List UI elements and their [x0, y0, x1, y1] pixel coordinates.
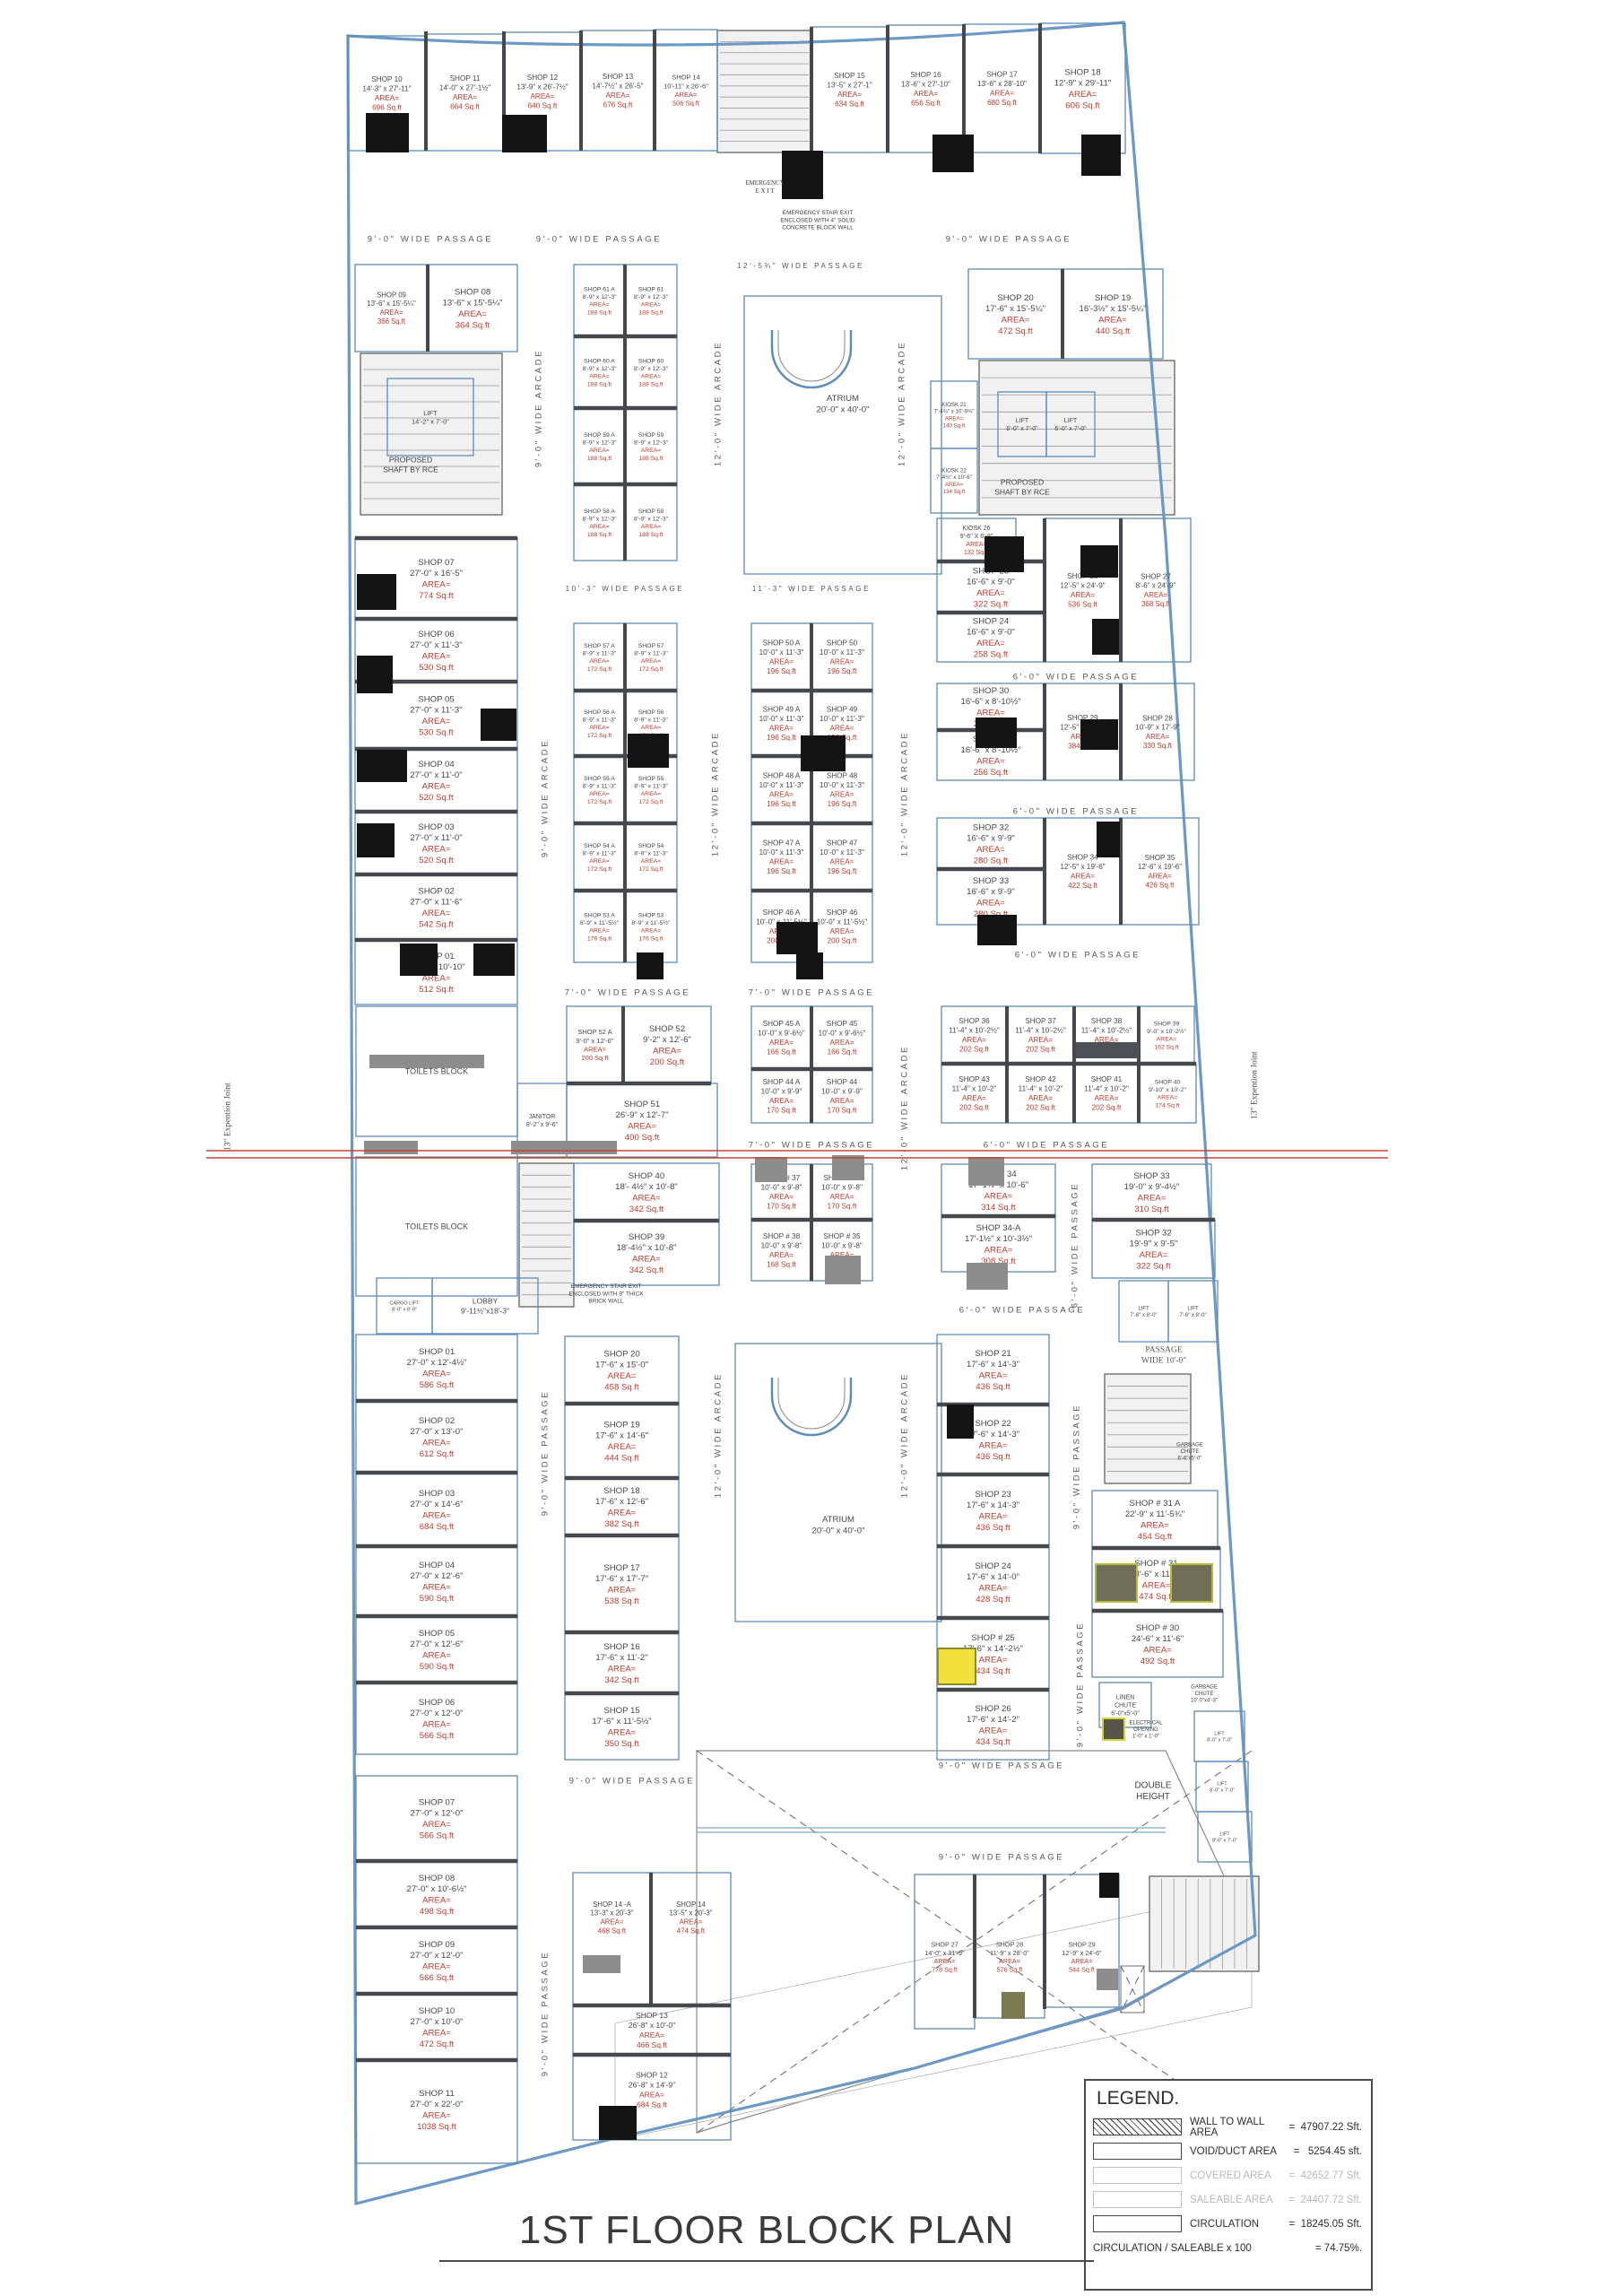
plan-text: 9'-0" WIDE ARCADE	[540, 739, 550, 857]
room: SHOP 4211'-4" x 10'-2"AREA=202 Sq.ft	[1007, 1064, 1074, 1123]
room: SHOP 53 A8'-9" x 11'-5½"AREA=176 Sq.ft	[574, 891, 625, 962]
legend-value: = 5254.45 sft.	[1294, 2146, 1362, 2157]
door-sign-box	[369, 1055, 484, 1068]
room: SHOP 548'-9" x 11'-3"AREA=172 Sq.ft	[625, 823, 677, 891]
room: SHOP 61 A8'-9" x 12'-3"AREA=188 Sq.ft	[574, 265, 625, 336]
room: SHOP 4311'-4" x 10'-2"AREA=202 Sq.ft	[941, 1064, 1007, 1123]
legend-label: CIRCULATION	[1190, 2219, 1288, 2230]
door-sign-box	[357, 574, 396, 610]
plan-text: GARBAGECHUTE10'.0"x4'-3"	[1191, 1685, 1218, 1704]
plan-text: DOUBLEHEIGHT	[1134, 1780, 1171, 1802]
room: LIFT7'-6" x 8'-0"	[1119, 1281, 1168, 1342]
room: SHOP 4018'- 4½" x 10'-8"AREA=342 Sq.ft	[574, 1163, 719, 1221]
room: SHOP 3216'-6" x 9'-9"AREA=280 Sq.ft	[937, 818, 1045, 869]
room-outline	[998, 392, 1046, 457]
room: SHOP 47 A10'-0" x 11'-3"AREA=196 Sq.ft	[751, 823, 811, 891]
room-label: TOILETS BLOCK	[405, 1222, 468, 1231]
room: SHOP 45 A10'-0" x 9'-6½"AREA=166 Sq.ft	[751, 1006, 811, 1069]
room: SHOP 2017'-6" x 15'-0"AREA=458 Sq.ft	[565, 1336, 679, 1404]
door-sign-box	[938, 1648, 976, 1684]
plan-text-label: 12'-0" WIDE ARCADE	[899, 731, 909, 857]
room: SHOP 529'-2" x 12'-6"AREA=200 Sq.ft	[623, 1006, 711, 1083]
room: SHOP 1613'-6" x 27'-10"AREA=656 Sq.ft	[888, 25, 964, 152]
plan-text-label: GARBAGECHUTE6'-6"x5'-0"	[1176, 1443, 1203, 1462]
plan-text-label: ELECTRICALOPENING1'-0" x 1'-0"	[1129, 1721, 1163, 1740]
plan-text: 12'-0" WIDE ARCADE	[713, 1372, 723, 1498]
room: SHOP 1917'-6" x 14'-6"AREA=444 Sq.ft	[565, 1404, 679, 1478]
room: SHOP 1817'-6" x 12'-6"AREA=382 Sq.ft	[565, 1478, 679, 1535]
plan-text-label: 6'-0" WIDE PASSAGE	[1013, 672, 1140, 682]
plan-text-label: DOUBLEHEIGHT	[1134, 1780, 1171, 1802]
room: SHOP 2117'-6" x 14'-3"AREA=436 Sq.ft	[937, 1335, 1049, 1405]
legend-row-circulation: CIRCULATION = 18245.05 Sft.	[1093, 2212, 1362, 2236]
plan-text: 12'-0" WIDE ARCADE	[899, 1372, 909, 1498]
plan-text-label: 9'-0" WIDE PASSAGE	[939, 1852, 1065, 1862]
room: SHOP 0527'-0" x 12'-6"AREA=590 Sq.ft	[356, 1616, 517, 1683]
room: SHOP 578'-9" x 11'-3"AREA=172 Sq.ft	[625, 623, 677, 691]
door-sign-box	[599, 2106, 637, 2140]
room: SHOP 538'-9" x 11'-5½"AREA=176 Sq.ft	[625, 891, 677, 962]
plan-text: 12'-0" WIDE ARCADE	[713, 341, 723, 466]
plan-text: 9'-0" WIDE PASSAGE	[939, 1852, 1065, 1862]
room-outline	[941, 1064, 1007, 1123]
plan-text-label: 12'-0" WIDE ARCADE	[899, 1045, 909, 1170]
room: SHOP 0327'-0" x 14'-6"AREA=684 Sq.ft	[356, 1473, 517, 1546]
plan-title: 1ST FLOOR BLOCK PLAN	[439, 2208, 1094, 2262]
plan-text: 12'-5¾" WIDE PASSAGE	[737, 262, 864, 270]
room: CARGO LIFT8'-0" x 8'-0"	[377, 1278, 432, 1334]
door-sign-box	[1081, 135, 1121, 176]
door-sign-box	[947, 1405, 974, 1439]
door-sign-box	[1097, 822, 1120, 857]
room: SHOP 55 A8'-9" x 11'-3"AREA=172 Sq.ft	[574, 756, 625, 823]
room: SHOP 1413'-5" x 20'-3"AREA=474 Sq.ft	[651, 1873, 731, 2005]
legend-ratio-label: CIRCULATION / SALEABLE x 100	[1093, 2243, 1315, 2254]
room-outline	[751, 1006, 811, 1069]
room: SHOP 278'-6" x 24'-9"AREA=368 Sq.ft	[1121, 518, 1191, 662]
door-sign-box	[366, 113, 409, 152]
door-sign-box	[1171, 1564, 1212, 1602]
room: SHOP 2714'-0" x 31'-9"AREA=778 Sq.ft	[915, 1874, 975, 2029]
room: SHOP 0127'-0" x 12'-4½"AREA=586 Sq.ft	[356, 1335, 517, 1401]
room: SHOP 2017'-6" x 15'-5¼"AREA=472 Sq.ft	[968, 269, 1063, 359]
plan-text-label: 9'-0" WIDE PASSAGE	[368, 234, 494, 244]
plan-text: 12'-0" WIDE ARCADE	[710, 731, 720, 857]
door-sign-box	[637, 952, 664, 979]
room: SHOP 4111'-4" x 10'-2"AREA=202 Sq.ft	[1074, 1064, 1139, 1123]
room: SHOP 52 A9'-0" x 12'-6"AREA=200 Sq.ft	[567, 1006, 623, 1083]
door-sign-box	[481, 709, 516, 741]
room: SHOP 0427'-0" x 12'-6"AREA=590 Sq.ft	[356, 1546, 517, 1616]
legend-value: = 18245.05 Sft.	[1288, 2219, 1362, 2230]
plan-text-label: 12'-0" WIDE ARCADE	[710, 731, 720, 857]
legend-label: VOID/DUCT AREA	[1190, 2146, 1294, 2157]
plan-text-label: 10'-3" WIDE PASSAGE	[566, 585, 685, 593]
door-sign-box	[755, 1157, 787, 1182]
room: SHOP 0927'-0" x 12'-0"AREA=566 Sq.ft	[356, 1927, 517, 1994]
legend: LEGEND. WALL TO WALL AREA = 47907.22 Sft…	[1084, 2079, 1373, 2291]
box-swatch-icon	[1093, 2167, 1182, 2184]
room: SHOP 1127'-0" x 22'-0"AREA=1038 Sq.ft	[356, 2060, 517, 2163]
plan-text-label: 9'-0" WIDE PASSAGE	[536, 234, 663, 244]
plan-text: 6'-0" WIDE PASSAGE	[1013, 672, 1140, 682]
plan-text-label: 9'-0" WIDE PASSAGE	[1071, 1404, 1081, 1530]
door-sign-box	[801, 735, 846, 771]
room: SHOP 0227'-0" x 11'-6"AREA=542 Sq.ft	[355, 874, 517, 940]
room: SHOP 1226'-8" x 14'-9"AREA=684 Sq.ft	[573, 2055, 731, 2140]
room: SHOP 0227'-0" x 13'-0"AREA=612 Sq.ft	[356, 1401, 517, 1473]
room: SHOP 2810'-9" x 17'-9"AREA=330 Sq.ft	[1121, 683, 1194, 780]
legend-label: WALL TO WALL AREA	[1190, 2117, 1288, 2138]
door-sign-box	[1097, 1969, 1118, 1990]
room-label: CARGO LIFT8'-0" x 8'-0"	[389, 1300, 420, 1312]
door-sign-box	[583, 1955, 620, 1973]
room: SHOP 3512'-6" x 19'-6"AREA=426 Sq.ft	[1121, 818, 1199, 925]
room: SHOP 58 A8'-9" x 12'-3"AREA=188 Sq.ft	[574, 484, 625, 561]
plan-text-label: EMERGENCY STAIR EXITENCLOSED WITH 9" THI…	[568, 1283, 644, 1304]
door-sign-box	[825, 1256, 861, 1284]
room-outline	[811, 891, 872, 962]
room-outline	[751, 623, 811, 691]
room: LIFT8'-0" x 7'-0"	[1198, 1812, 1252, 1862]
plan-text: PROPOSEDSHAFT BY RCE	[383, 456, 438, 474]
door-sign-box	[796, 952, 823, 979]
plan-text-label: 12'-0" WIDE ARCADE	[897, 341, 906, 466]
legend-value: = 42652.77 Sft.	[1288, 2170, 1362, 2181]
room: SHOP 1517'-6" x 11'-5½"AREA=350 Sq.ft	[565, 1693, 679, 1760]
plan-text-label: 9'-0" WIDE PASSAGE	[1075, 1622, 1085, 1748]
plan-text: 6'-0" WIDE PASSAGE	[1015, 950, 1141, 960]
room: SHOP 1326'-8" x 10'-0"AREA=466 Sq.ft	[573, 2005, 731, 2055]
room: SHOP 3219'-9" x 9'-5"AREA=322 Sq.ft	[1092, 1220, 1215, 1278]
room-outline	[1074, 1064, 1139, 1123]
room: SHOP 1027'-0" x 10'-0"AREA=472 Sq.ft	[356, 1994, 517, 2060]
room: SHOP 1410'-11" x 26'-6"AREA=506 Sq.ft	[655, 30, 717, 151]
room-outline	[811, 27, 888, 152]
plan-text: 11'-3" WIDE PASSAGE	[752, 585, 871, 593]
legend-label: SALEABLE AREA	[1190, 2195, 1288, 2205]
plan-text-label: PROPOSEDSHAFT BY RCE	[994, 478, 1050, 497]
room: SHOP 1513'-5" x 27'-1"AREA=634 Sq.ft	[811, 27, 888, 152]
plan-text-label: PROPOSEDSHAFT BY RCE	[383, 456, 438, 474]
plan-text-label: EMERGENCY STAIR EXITENCLOSED WITH 4" SOL…	[780, 210, 855, 230]
room-label: JANITOR8'-2" x 9'-6"	[526, 1114, 559, 1128]
plan-text: ELECTRICALOPENING1'-0" x 1'-0"	[1129, 1721, 1163, 1740]
plan-text-label: 12'-0" WIDE ARCADE	[713, 1372, 723, 1498]
legend-row-void-duct: VOID/DUCT AREA = 5254.45 sft.	[1093, 2139, 1362, 2163]
door-sign-box	[364, 1141, 418, 1154]
plan-text-label: 12'-0" WIDE ARCADE	[899, 1372, 909, 1498]
room: SHOP 50 A10'-0" x 11'-3"AREA=196 Sq.ft	[751, 623, 811, 691]
room: SHOP # 3810'-0" x 9'-8"AREA=168 Sq.ft	[751, 1220, 811, 1281]
box-swatch-icon	[1093, 2143, 1182, 2160]
plan-text: 9'-0" WIDE PASSAGE	[946, 234, 1072, 244]
door-sign-box	[782, 151, 823, 199]
plan-text: 6'-0" WIDE PASSAGE	[1070, 1182, 1080, 1309]
plan-text-label: 7'-0" WIDE PASSAGE	[749, 987, 875, 997]
legend-title: LEGEND.	[1097, 2088, 1362, 2109]
door-sign-box	[1096, 1564, 1137, 1602]
legend-value: = 47907.22 Sft.	[1288, 2122, 1362, 2133]
plan-text: 13" Expention Joint	[223, 1083, 232, 1151]
plan-text: 9'-0" WIDE PASSAGE	[540, 1951, 550, 2077]
plan-text: 13" Expention Joint	[1250, 1051, 1259, 1119]
box-swatch-icon	[1093, 2191, 1182, 2208]
room: SHOP 399'-0" x 10'-2½"AREA=162 Sq.ft	[1139, 1006, 1194, 1064]
room: SHOP 3711'-4" x 10'-2½"AREA=202 Sq.ft	[1007, 1006, 1074, 1064]
room: TOILETS BLOCK	[356, 1157, 517, 1296]
door-sign-box	[357, 656, 393, 693]
plan-text: GARBAGECHUTE6'-6"x5'-0"	[1176, 1443, 1203, 1462]
plan-text: 9'-0" WIDE PASSAGE	[1071, 1404, 1081, 1530]
room: SHOP 1713'-6" x 28'-10"AREA=680 Sq.ft	[964, 24, 1040, 152]
plan-text: EMERGENCY STAIR EXITENCLOSED WITH 9" THI…	[568, 1283, 644, 1304]
legend-value: = 24407.72 Sft.	[1288, 2195, 1362, 2205]
room: SHOP # 31 A22'-9" x 11'-5¾"AREA=454 Sq.f…	[1092, 1491, 1218, 1548]
legend-row-wall-to-wall: WALL TO WALL AREA = 47907.22 Sft.	[1093, 2115, 1362, 2139]
room-outline	[811, 1006, 872, 1069]
door-sign-box	[977, 915, 1017, 945]
plan-text: 7'-0" WIDE PASSAGE	[749, 987, 875, 997]
plan-text-label: GARBAGECHUTE10'.0"x4'-3"	[1191, 1685, 1218, 1704]
staircase	[1149, 1876, 1259, 1971]
plan-text: 12'-0" WIDE ARCADE	[899, 731, 909, 857]
plan-text-label: 13" Expention Joint	[223, 1083, 232, 1151]
room: SHOP 618'-9" x 12'-3"AREA=188 Sq.ft	[625, 265, 677, 336]
plan-text-label: 13" Expention Joint	[1250, 1051, 1259, 1119]
door-sign-box	[984, 536, 1024, 572]
plan-text-label: 9'-0" WIDE ARCADE	[540, 739, 550, 857]
door-sign-box	[502, 115, 547, 152]
legend-row-covered: COVERED AREA = 42652.77 Sft.	[1093, 2163, 1362, 2187]
room: SHOP 1812'-9" x 29'-11"AREA=606 Sq.ft	[1040, 23, 1125, 153]
room: SHOP 1717'-6" x 17'-7"AREA=538 Sq.ft	[565, 1535, 679, 1632]
room: SHOP 409'-10" x 10'-2"AREA=174 Sq.ft	[1139, 1064, 1196, 1123]
room: SHOP 588'-9" x 12'-3"AREA=188 Sq.ft	[625, 484, 677, 561]
room: SHOP 44 A10'-0" x 9'-9"AREA=170 Sq.ft	[751, 1069, 811, 1123]
staircase	[1105, 1374, 1191, 1483]
room: SHOP 3319'-0" x 9'-4½"AREA=310 Sq.ft	[1092, 1164, 1211, 1220]
plan-text: EMERGENCY STAIR EXITENCLOSED WITH 4" SOL…	[780, 210, 855, 230]
plan-text-label: 9'-0" WIDE PASSAGE	[540, 1951, 550, 2077]
room-outline	[888, 25, 964, 152]
plan-text-label: PASSAGEWIDE 10'-0"	[1141, 1345, 1186, 1365]
plan-text-label: 9'-0" WIDE ARCADE	[533, 349, 543, 467]
plan-text: 12'-0" WIDE ARCADE	[899, 1045, 909, 1170]
plan-text: 9'-0" WIDE PASSAGE	[939, 1761, 1065, 1770]
plan-text: 7'-0" WIDE PASSAGE	[565, 987, 691, 997]
door-sign-box	[357, 750, 407, 782]
door-sign-box	[628, 734, 669, 768]
room-label: TOILETS BLOCK	[405, 1067, 468, 1076]
room-outline	[426, 34, 504, 151]
plan-text: 6'-0" WIDE PASSAGE	[959, 1305, 1086, 1315]
room: SHOP 1314'-7½" x 26'-5"AREA=676 Sq.ft	[581, 30, 655, 151]
room: SHOP 4710'-0" x 11'-3"AREA=196 Sq.ft	[811, 823, 872, 891]
plan-text-label: 6'-0" WIDE PASSAGE	[984, 1140, 1110, 1150]
box-swatch-icon	[1093, 2215, 1182, 2232]
room: LIFT6'-0" x 7'-0"	[1046, 392, 1095, 457]
room: SHOP 1114'-0" x 27'-1½"AREA=664 Sq.ft	[426, 34, 504, 151]
room: SHOP 4610'-0" x 11'-5½"AREA=200 Sq.ft	[811, 891, 872, 962]
door-sign-box	[1076, 1042, 1139, 1058]
room: ATRIUM20'-0" x 40'-0"	[735, 1344, 941, 1622]
room: SHOP 4410'-0" x 9'-9"AREA=170 Sq.ft	[811, 1069, 872, 1123]
plan-text-label: 11'-3" WIDE PASSAGE	[752, 585, 871, 593]
door-sign-box	[1092, 619, 1119, 655]
room: LOBBY9'-11½"x18'-3"	[432, 1278, 538, 1334]
room: SHOP 56 A8'-9" x 11'-3"AREA=172 Sq.ft	[574, 691, 625, 756]
room: LIFT14'-2" x 7'-0"	[387, 378, 473, 456]
plan-text-label: EMERGENCYE X I T	[745, 179, 785, 195]
legend-label: COVERED AREA	[1190, 2170, 1288, 2181]
room: ATRIUM20'-0" x 40'-0"	[744, 296, 941, 574]
plan-text-label: 12'-5¾" WIDE PASSAGE	[737, 262, 864, 270]
room: SHOP 0727'-0" x 12'-0"AREA=566 Sq.ft	[356, 1776, 517, 1861]
room: SHOP 0913'-6" x 15'-5¼"AREA=366 Sq.ft	[355, 265, 428, 352]
room-outline	[751, 823, 811, 891]
plan-text: PASSAGEWIDE 10'-0"	[1141, 1345, 1186, 1365]
plan-text: 9'-0" WIDE ARCADE	[533, 349, 543, 467]
door-sign-box	[511, 1141, 617, 1154]
plan-text-label: 6'-0" WIDE PASSAGE	[1013, 806, 1140, 816]
plan-text: 9'-0" WIDE PASSAGE	[540, 1390, 550, 1517]
room: SHOP 14 -A13'-3" x 20'-3"AREA=468 Sq.ft	[573, 1873, 651, 2005]
room-outline	[581, 30, 655, 151]
room: KIOSK 217'-4¾" x 10'-9¾"AREA=140 Sq.ft	[931, 381, 977, 448]
hatch-swatch-icon	[1093, 2118, 1182, 2135]
door-sign-box	[776, 922, 818, 954]
room-outline	[751, 1069, 811, 1123]
plan-text: 9'-0" WIDE PASSAGE	[1075, 1622, 1085, 1748]
plan-text-label: 6'-0" WIDE PASSAGE	[959, 1305, 1086, 1315]
plan-text: 7'-0" WIDE PASSAGE	[749, 1140, 875, 1150]
room: SHOP 2416'-6" x 9'-0"AREA=258 Sq.ft	[937, 613, 1045, 662]
room: SHOP 5010'-0" x 11'-3"AREA=196 Sq.ft	[811, 623, 872, 691]
room: TOILETS BLOCK	[356, 1006, 517, 1136]
legend-ratio-value: = 74.75%.	[1315, 2243, 1362, 2254]
room-outline	[811, 823, 872, 891]
room: SHOP 1916'-3½" x 15'-5¼"AREA=440 Sq.ft	[1063, 269, 1163, 359]
room: SHOP 0827'-0" x 10'-6½"AREA=498 Sq.ft	[356, 1861, 517, 1927]
room: SHOP # 3024'-6" x 11'-6"AREA=492 Sq.ft	[1092, 1611, 1223, 1677]
room: LIFT8'-0" x 7'-0"	[1194, 1711, 1245, 1761]
plan-text: 12'-0" WIDE ARCADE	[897, 341, 906, 466]
room-outline	[1007, 1064, 1074, 1123]
room: LIFT6'-0" x 7'-0"	[998, 392, 1046, 457]
door-sign-box	[932, 135, 974, 172]
room: SHOP 54 A8'-9" x 11'-3"AREA=172 Sq.ft	[574, 823, 625, 891]
room: SHOP 3611'-4" x 10'-2½"AREA=202 Sq.ft	[941, 1006, 1007, 1064]
legend-ratio-row: CIRCULATION / SALEABLE x 100 = 74.75%.	[1093, 2243, 1362, 2254]
legend-row-saleable: SALEABLE AREA = 24407.72 Sft.	[1093, 2187, 1362, 2212]
room: SHOP 0813'-6" x 15'-5¼"AREA=364 Sq.ft	[428, 265, 517, 352]
plan-text-label: 9'-0" WIDE PASSAGE	[540, 1390, 550, 1517]
plan-text: 9'-0" WIDE PASSAGE	[368, 234, 494, 244]
room-outline	[573, 1873, 651, 2005]
plan-text-label: 9'-0" WIDE PASSAGE	[939, 1761, 1065, 1770]
door-sign-box	[1099, 1873, 1119, 1898]
room: SHOP 0627'-0" x 12'-0"AREA=566 Sq.ft	[356, 1683, 517, 1754]
room-outline	[941, 1006, 1007, 1064]
plan-text-label: 9'-0" WIDE PASSAGE	[569, 1776, 696, 1786]
room-outline	[744, 296, 941, 574]
door-sign-box	[1002, 1992, 1025, 2019]
room: SHOP 2317'-6" x 14'-3"AREA=436 Sq.ft	[937, 1474, 1049, 1546]
plan-text-label: 6'-0" WIDE PASSAGE	[1070, 1182, 1080, 1309]
floor-plan-sheet: SHOP 1014'-3" x 27'-11"AREA=696 Sq.ftSHO…	[0, 0, 1622, 2296]
plan-text: 6'-0" WIDE PASSAGE	[1013, 806, 1140, 816]
door-sign-box	[967, 1263, 1008, 1290]
room-outline	[735, 1344, 941, 1622]
room: SHOP 3918'-4½" x 10'-8"AREA=342 Sq.ft	[574, 1221, 719, 1285]
room: SHOP 2417'-6" x 14'-0"AREA=428 Sq.ft	[937, 1546, 1049, 1618]
room: LIFT8'-0" x 7'-0"	[1196, 1761, 1248, 1812]
room: SHOP 2617'-6" x 14'-2"AREA=434 Sq.ft	[937, 1690, 1049, 1760]
door-sign-box	[1080, 719, 1118, 750]
room-outline	[1007, 1006, 1074, 1064]
room: KIOSK 227'-4¾" x 10'-6"AREA=134 Sq.ft	[931, 448, 977, 513]
room-outline	[964, 24, 1040, 152]
plan-text-label: 9'-0" WIDE PASSAGE	[946, 234, 1072, 244]
plan-text: 9'-0" WIDE PASSAGE	[569, 1776, 696, 1786]
room: SHOP 57 A8'-9" x 11'-3"AREA=172 Sq.ft	[574, 623, 625, 691]
plan-text-label: 12'-0" WIDE ARCADE	[713, 341, 723, 466]
door-sign-box	[968, 1157, 1004, 1186]
room-outline	[1046, 392, 1095, 457]
plan-text: PROPOSEDSHAFT BY RCE	[994, 478, 1050, 497]
door-sign-box	[976, 717, 1017, 748]
room: SHOP 59 A8'-9" x 12'-3"AREA=188 Sq.ft	[574, 408, 625, 484]
door-sign-box	[1080, 545, 1118, 578]
door-sign-box	[832, 1155, 864, 1180]
plan-text-label: 6'-0" WIDE PASSAGE	[1015, 950, 1141, 960]
room: SHOP 608'-9" x 12'-3"AREA=188 Sq.ft	[625, 336, 677, 408]
room: SHOP 4510'-0" x 9'-6½"AREA=166 Sq.ft	[811, 1006, 872, 1069]
room: SHOP 60 A8'-9" x 12'-3"AREA=188 Sq.ft	[574, 336, 625, 408]
room: SHOP 1617'-6" x 11'-2"AREA=342 Sq.ft	[565, 1632, 679, 1693]
room-outline	[651, 1873, 731, 2005]
plan-text: 9'-0" WIDE PASSAGE	[536, 234, 663, 244]
plan-text-label: 7'-0" WIDE PASSAGE	[565, 987, 691, 997]
room-outline	[751, 1220, 811, 1281]
plan-text-label: 7'-0" WIDE PASSAGE	[749, 1140, 875, 1150]
door-sign-box	[473, 944, 515, 976]
room: SHOP 598'-9" x 12'-3"AREA=188 Sq.ft	[625, 408, 677, 484]
floor-plan-drawing: SHOP 1014'-3" x 27'-11"AREA=696 Sq.ftSHO…	[0, 0, 1622, 2296]
plan-text: 6'-0" WIDE PASSAGE	[984, 1140, 1110, 1150]
door-sign-box	[400, 944, 438, 976]
plan-text: EMERGENCYE X I T	[745, 179, 785, 195]
room: LIFT7'-6" x 8'-0"	[1168, 1281, 1218, 1342]
room-outline	[811, 1069, 872, 1123]
room-outline	[811, 623, 872, 691]
door-sign-box	[1103, 1718, 1124, 1740]
door-sign-box	[357, 823, 395, 857]
plan-text: 10'-3" WIDE PASSAGE	[566, 585, 685, 593]
staircase	[717, 30, 811, 152]
